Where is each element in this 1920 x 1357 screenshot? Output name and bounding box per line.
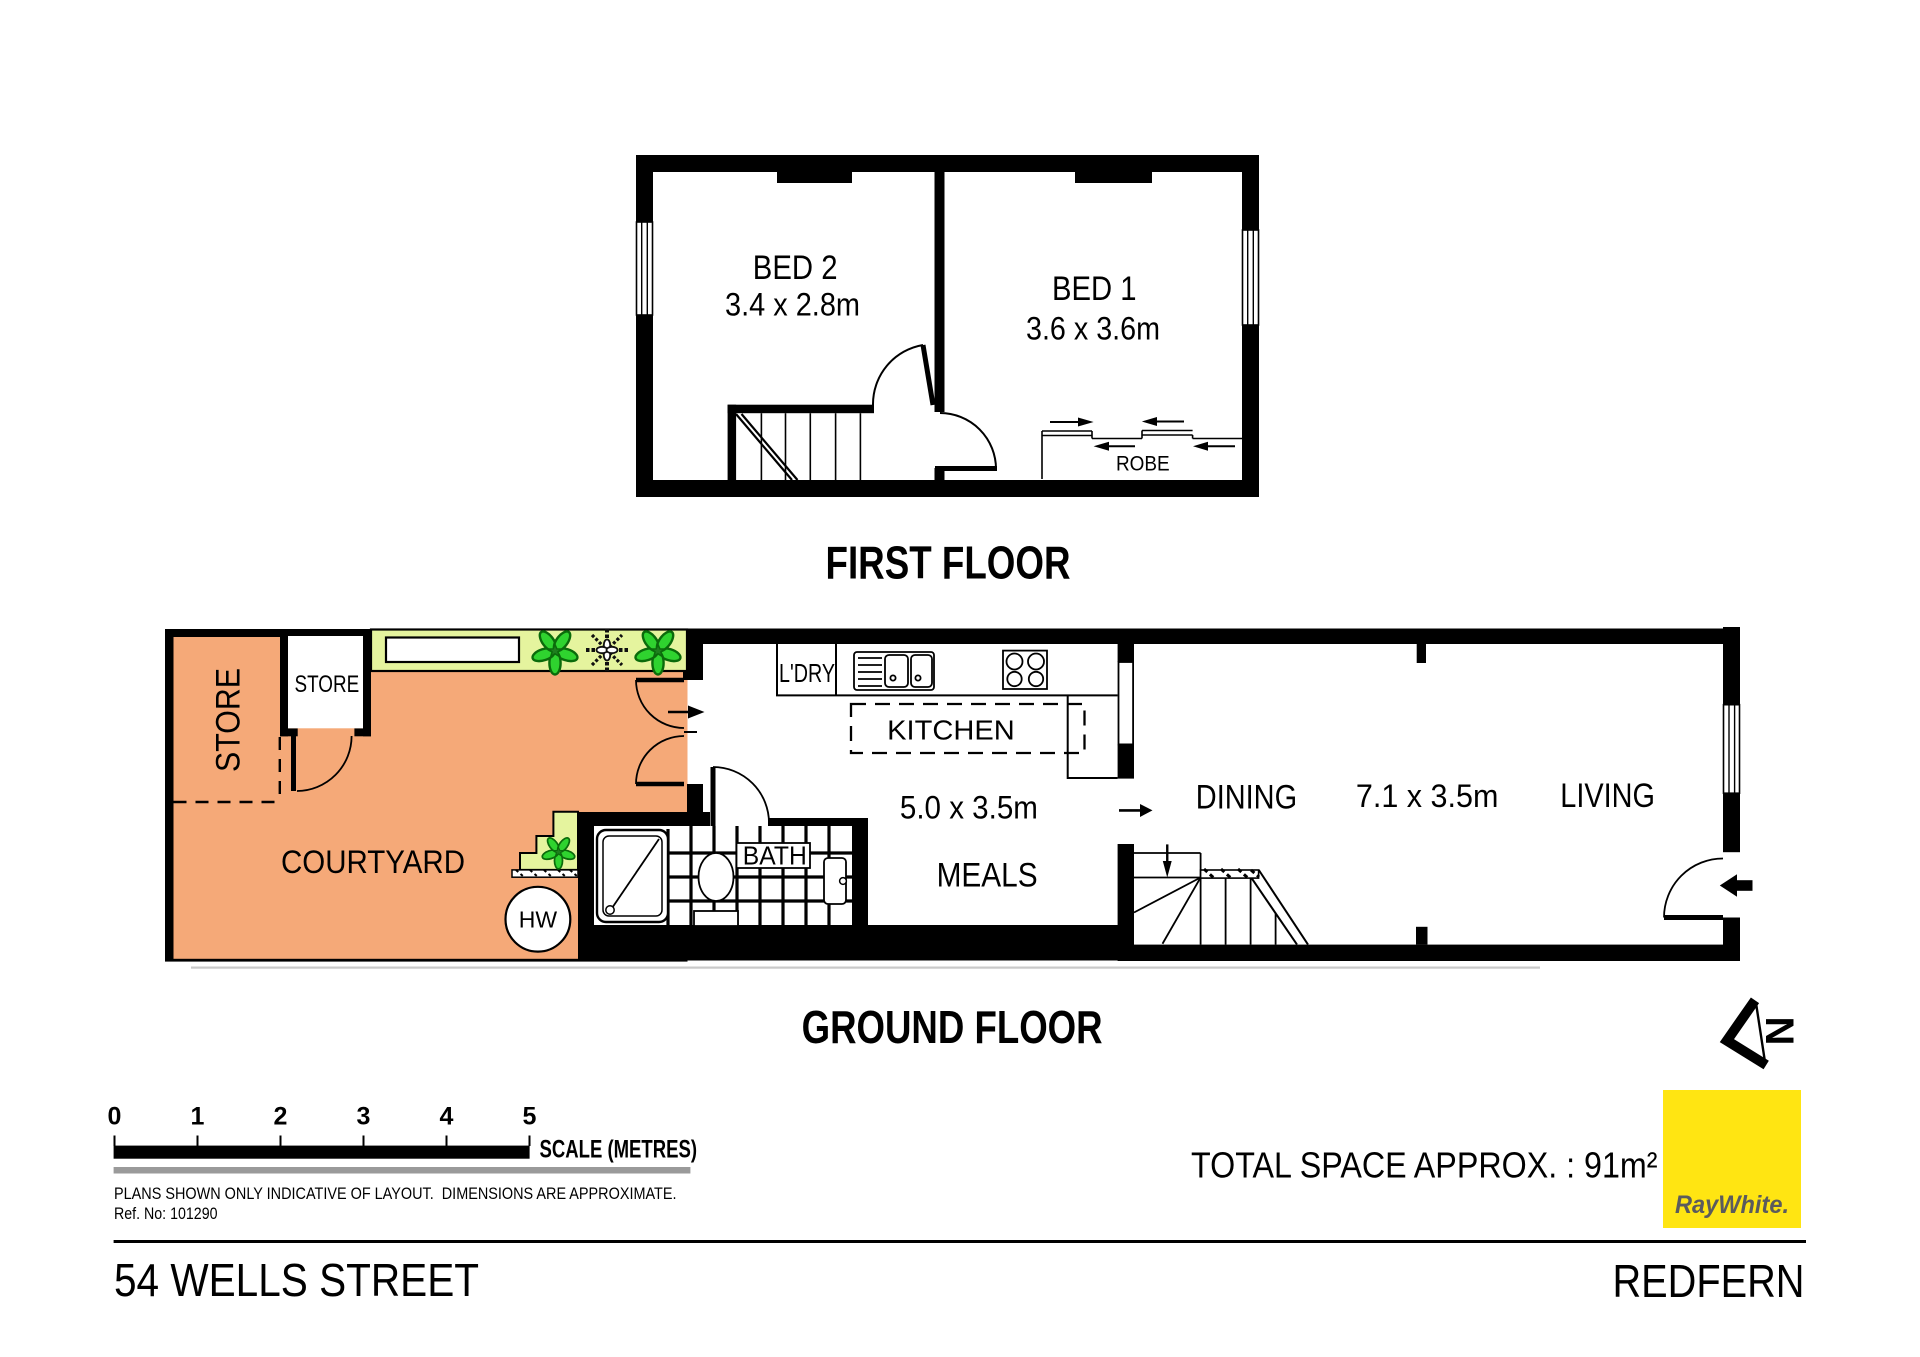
svg-text:0: 0	[108, 1103, 122, 1131]
svg-text:COURTYARD: COURTYARD	[281, 844, 465, 880]
svg-text:1: 1	[191, 1103, 205, 1131]
svg-text:BED 2: BED 2	[753, 249, 838, 287]
svg-text:N: N	[1757, 1017, 1801, 1046]
svg-text:4: 4	[440, 1103, 454, 1131]
svg-text:STORE: STORE	[210, 668, 248, 772]
svg-text:2: 2	[274, 1103, 288, 1131]
svg-text:FIRST FLOOR: FIRST FLOOR	[826, 537, 1071, 589]
svg-text:54 WELLS STREET: 54 WELLS STREET	[114, 1254, 479, 1306]
svg-text:REDFERN: REDFERN	[1613, 1255, 1805, 1307]
svg-text:3.4 x 2.8m: 3.4 x 2.8m	[725, 287, 860, 323]
svg-text:7.1 x 3.5m: 7.1 x 3.5m	[1356, 778, 1499, 814]
svg-text:TOTAL SPACE APPROX. : 91m²: TOTAL SPACE APPROX. : 91m²	[1191, 1145, 1658, 1186]
svg-text:PLANS SHOWN ONLY INDICATIVE OF: PLANS SHOWN ONLY INDICATIVE OF LAYOUT. D…	[114, 1184, 677, 1203]
svg-text:ROBE: ROBE	[1116, 452, 1170, 475]
svg-text:RayWhite.: RayWhite.	[1675, 1191, 1789, 1219]
svg-text:KITCHEN: KITCHEN	[887, 715, 1015, 746]
svg-text:5.0 x 3.5m: 5.0 x 3.5m	[900, 790, 1038, 826]
svg-text:L'DRY: L'DRY	[779, 658, 835, 688]
svg-text:HW: HW	[519, 907, 558, 933]
svg-text:DINING: DINING	[1196, 779, 1297, 817]
svg-text:SCALE (METRES): SCALE (METRES)	[540, 1136, 698, 1164]
svg-text:3: 3	[357, 1103, 371, 1131]
svg-text:5: 5	[523, 1103, 537, 1131]
svg-text:STORE: STORE	[295, 671, 360, 698]
svg-text:Ref. No: 101290: Ref. No: 101290	[114, 1204, 218, 1223]
svg-text:LIVING: LIVING	[1560, 777, 1655, 815]
svg-text:3.6 x 3.6m: 3.6 x 3.6m	[1026, 311, 1160, 347]
svg-text:BED 1: BED 1	[1052, 270, 1137, 308]
svg-text:MEALS: MEALS	[937, 857, 1038, 895]
svg-text:BATH: BATH	[743, 841, 807, 871]
svg-text:GROUND FLOOR: GROUND FLOOR	[802, 1001, 1103, 1053]
